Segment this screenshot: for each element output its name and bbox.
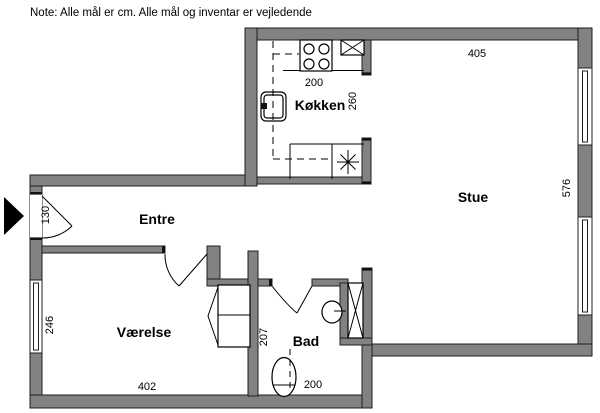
floorplan-drawing: Køkken 200 260 Stue 405 576 Entre 130 Væ… [0, 0, 600, 413]
wall-living-bottom [362, 344, 592, 356]
bedroom-door-leaf [179, 254, 207, 286]
bedroom-door-swing-arc [165, 254, 179, 286]
floorplan-page: Note: Alle mål er cm. Alle mål og invent… [0, 0, 600, 413]
dim-kitchen-depth: 260 [347, 92, 359, 110]
dim-bedroom-width: 402 [138, 381, 156, 393]
dim-living-depth: 576 [561, 179, 573, 197]
room-label-bath: Bad [293, 333, 319, 349]
bath-door-jamb [269, 279, 272, 286]
shower-x-icon [348, 283, 363, 338]
kitchen-opening-jamb-top [362, 72, 371, 75]
room-label-hall: Entre [139, 211, 175, 227]
wall-hall-bottom [42, 246, 165, 253]
dim-bedroom-depth: 246 [44, 316, 56, 334]
window-bedroom [30, 280, 42, 353]
bath-door-swing-arc [272, 286, 297, 313]
room-label-bedroom: Værelse [117, 324, 172, 340]
wall-exterior-top [245, 28, 592, 40]
dim-entry-door: 130 [40, 206, 52, 224]
entry-door-jamb-bottom [30, 237, 42, 240]
hall-opening-jamb-top [362, 181, 371, 184]
wall-hall-top [30, 175, 257, 186]
window-living-upper [578, 68, 592, 145]
entry-door-jamb-top [30, 192, 42, 195]
bath-door-leaf [297, 286, 312, 313]
kitchen-opening-jamb-bottom [362, 138, 371, 141]
stove-4-burners-icon [300, 40, 332, 71]
room-label-kitchen: Køkken [295, 97, 346, 113]
toilet-icon [272, 358, 296, 397]
dim-living-width: 405 [468, 48, 486, 60]
dim-kitchen-width: 200 [305, 77, 323, 89]
wall-kitchen-right-lower [362, 138, 371, 184]
wall-shower-bottom [340, 338, 372, 345]
bedroom-door-jamb [162, 246, 165, 253]
entry-door-swing-arc [42, 226, 72, 238]
bedroom-fixtures [208, 285, 250, 347]
hall-opening-jamb-bottom [362, 268, 372, 271]
window-living-lower [578, 217, 592, 315]
wall-kitchen-left [245, 28, 257, 186]
room-label-living: Stue [458, 189, 489, 205]
wardrobe-icon [208, 285, 250, 347]
asterisk-drain-icon [337, 150, 359, 174]
labels: Køkken 200 260 Stue 405 576 Entre 130 Væ… [40, 48, 573, 393]
dim-bath-depth: 207 [258, 328, 270, 346]
appliance-x-icon [341, 40, 364, 55]
entrance-arrow-icon [4, 197, 24, 235]
wall-exterior-bottom [30, 395, 372, 408]
dim-bath-width: 200 [304, 379, 322, 391]
wall-kitchen-bottom [257, 177, 371, 184]
